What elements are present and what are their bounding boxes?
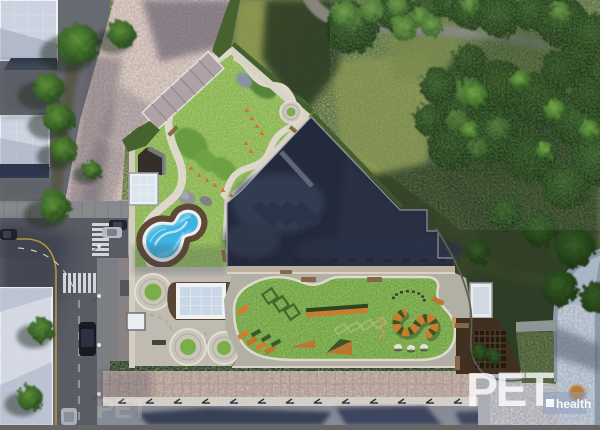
svg-text:PET: PET (96, 393, 148, 424)
svg-text:health: health (556, 397, 591, 411)
svg-text:PET: PET (466, 364, 554, 417)
